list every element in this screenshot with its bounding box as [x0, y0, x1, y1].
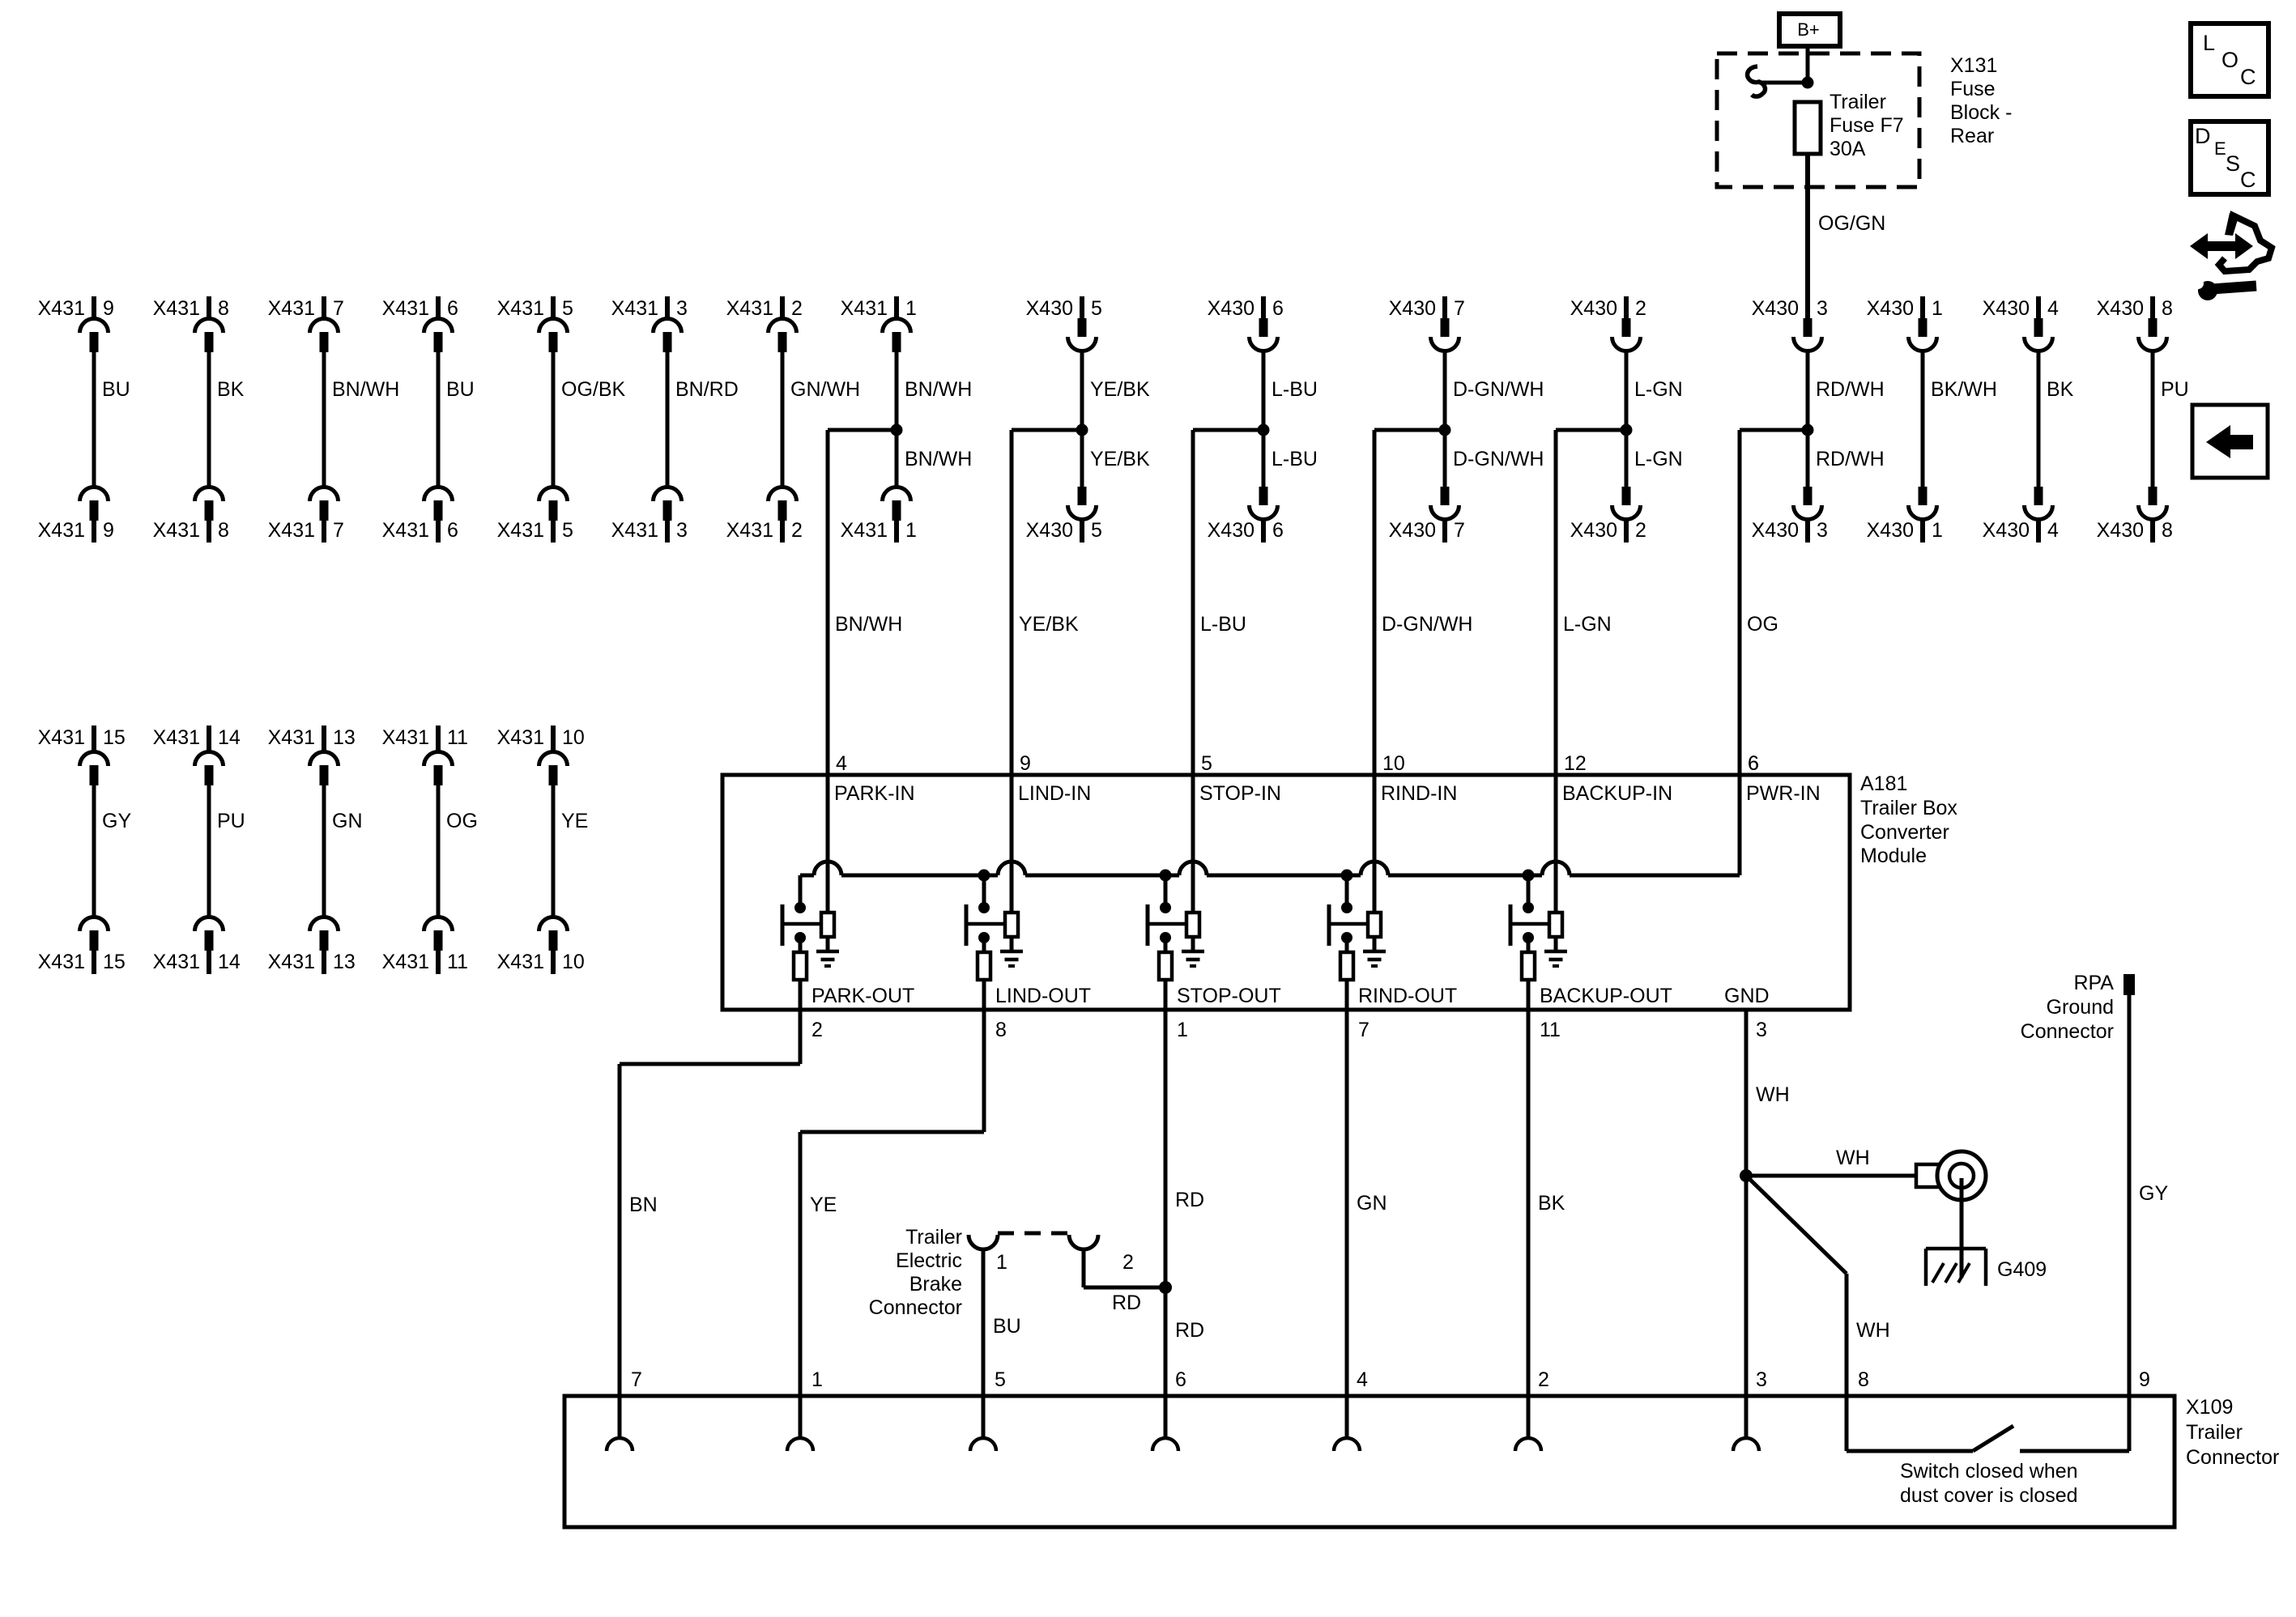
svg-text:GN: GN [1357, 1192, 1387, 1215]
svg-text:10: 10 [1382, 752, 1405, 775]
svg-text:1: 1 [811, 1368, 823, 1391]
svg-text:14: 14 [218, 951, 241, 973]
svg-text:Converter: Converter [1860, 821, 1949, 844]
svg-text:BK: BK [2047, 378, 2074, 401]
svg-text:13: 13 [333, 726, 356, 749]
svg-text:STOP-IN: STOP-IN [1199, 782, 1281, 805]
svg-text:9: 9 [2139, 1368, 2150, 1391]
svg-text:X430: X430 [1867, 297, 1914, 320]
svg-text:X431: X431 [726, 297, 773, 320]
svg-text:X431: X431 [382, 519, 429, 542]
svg-text:RIND-IN: RIND-IN [1381, 782, 1457, 805]
svg-text:X431: X431 [497, 297, 544, 320]
svg-text:6: 6 [1272, 519, 1284, 542]
svg-text:7: 7 [1358, 1019, 1370, 1041]
svg-text:Connector: Connector [2021, 1020, 2114, 1043]
svg-text:LIND-OUT: LIND-OUT [995, 985, 1091, 1007]
svg-text:L-GN: L-GN [1563, 613, 1612, 636]
svg-text:5: 5 [562, 519, 573, 542]
svg-text:X431: X431 [268, 519, 315, 542]
svg-text:RD/WH: RD/WH [1816, 378, 1885, 401]
svg-text:D-GN/WH: D-GN/WH [1453, 448, 1544, 470]
svg-text:1: 1 [905, 297, 917, 320]
svg-text:D-GN/WH: D-GN/WH [1453, 378, 1544, 401]
svg-text:1: 1 [996, 1251, 1007, 1274]
svg-text:Fuse: Fuse [1950, 78, 1996, 100]
svg-text:7: 7 [631, 1368, 642, 1391]
svg-text:7: 7 [333, 519, 344, 542]
svg-text:8: 8 [218, 297, 229, 320]
svg-text:X430: X430 [1389, 297, 1436, 320]
svg-text:X430: X430 [2097, 519, 2144, 542]
svg-text:X430: X430 [1752, 297, 1799, 320]
svg-text:X430: X430 [1867, 519, 1914, 542]
svg-text:X431: X431 [153, 726, 200, 749]
svg-text:Connector: Connector [869, 1296, 962, 1319]
svg-text:8: 8 [1858, 1368, 1869, 1391]
svg-text:7: 7 [1454, 519, 1465, 542]
svg-text:2: 2 [1122, 1251, 1134, 1274]
svg-text:X430: X430 [1389, 519, 1436, 542]
svg-text:4: 4 [836, 752, 847, 775]
svg-text:WH: WH [1836, 1147, 1870, 1169]
svg-text:X431: X431 [153, 951, 200, 973]
svg-text:X131: X131 [1950, 54, 1997, 77]
svg-text:OG/GN: OG/GN [1818, 212, 1885, 235]
svg-text:7: 7 [333, 297, 344, 320]
svg-text:L-BU: L-BU [1272, 378, 1318, 401]
svg-text:L-GN: L-GN [1634, 378, 1683, 401]
svg-text:X430: X430 [1208, 297, 1254, 320]
svg-text:3: 3 [676, 519, 688, 542]
svg-text:WH: WH [1756, 1083, 1790, 1106]
svg-text:6: 6 [447, 297, 458, 320]
svg-text:10: 10 [562, 951, 585, 973]
svg-text:7: 7 [1454, 297, 1465, 320]
svg-text:X431: X431 [268, 297, 315, 320]
svg-text:2: 2 [1635, 297, 1646, 320]
svg-text:X431: X431 [38, 519, 85, 542]
svg-text:X430: X430 [1983, 297, 2030, 320]
svg-text:YE/BK: YE/BK [1090, 448, 1150, 470]
svg-text:PU: PU [217, 810, 245, 832]
svg-text:BN/WH: BN/WH [835, 613, 902, 636]
svg-text:Block -: Block - [1950, 101, 2012, 124]
svg-text:6: 6 [447, 519, 458, 542]
svg-text:PARK-IN: PARK-IN [834, 782, 915, 805]
svg-text:10: 10 [562, 726, 585, 749]
svg-text:G409: G409 [1997, 1258, 2047, 1281]
svg-text:4: 4 [2047, 297, 2059, 320]
svg-text:GY: GY [2139, 1182, 2168, 1205]
svg-text:LIND-IN: LIND-IN [1018, 782, 1091, 805]
svg-text:D-GN/WH: D-GN/WH [1382, 613, 1472, 636]
svg-text:L-BU: L-BU [1200, 613, 1246, 636]
svg-text:2: 2 [1635, 519, 1646, 542]
svg-text:Electric: Electric [896, 1249, 962, 1272]
svg-text:3: 3 [1817, 297, 1828, 320]
svg-text:X430: X430 [1570, 297, 1617, 320]
svg-text:YE/BK: YE/BK [1019, 613, 1079, 636]
svg-text:11: 11 [1540, 1019, 1561, 1041]
svg-text:1: 1 [1932, 519, 1943, 542]
svg-text:15: 15 [103, 951, 126, 973]
svg-text:X431: X431 [841, 519, 888, 542]
svg-text:GN: GN [332, 810, 363, 832]
svg-text:5: 5 [1091, 297, 1102, 320]
svg-text:9: 9 [103, 519, 114, 542]
svg-text:RD: RD [1175, 1189, 1204, 1211]
svg-text:2: 2 [1538, 1368, 1549, 1391]
svg-text:X430: X430 [2097, 297, 2144, 320]
svg-text:RPA: RPA [2073, 972, 2114, 994]
svg-text:X431: X431 [611, 297, 658, 320]
svg-text:BN/WH: BN/WH [905, 448, 972, 470]
svg-text:L-BU: L-BU [1272, 448, 1318, 470]
svg-text:8: 8 [2162, 297, 2173, 320]
svg-text:BK/WH: BK/WH [1931, 378, 1997, 401]
svg-text:RD/WH: RD/WH [1816, 448, 1885, 470]
svg-text:11: 11 [447, 726, 468, 749]
svg-text:Connector: Connector [2186, 1446, 2279, 1469]
svg-text:GN/WH: GN/WH [790, 378, 860, 401]
svg-text:PWR-IN: PWR-IN [1746, 782, 1821, 805]
svg-text:13: 13 [333, 951, 356, 973]
svg-text:14: 14 [218, 726, 241, 749]
svg-text:PU: PU [2161, 378, 2189, 401]
svg-text:2: 2 [791, 519, 803, 542]
svg-text:X430: X430 [1570, 519, 1617, 542]
svg-text:11: 11 [447, 951, 468, 973]
svg-text:X431: X431 [38, 726, 85, 749]
svg-text:RD: RD [1112, 1291, 1141, 1314]
svg-text:YE: YE [810, 1194, 837, 1216]
svg-text:X109: X109 [2186, 1396, 2233, 1419]
svg-text:RIND-OUT: RIND-OUT [1358, 985, 1457, 1007]
svg-text:1: 1 [1932, 297, 1943, 320]
svg-text:B+: B+ [1797, 19, 1820, 40]
svg-text:BK: BK [1538, 1192, 1565, 1215]
svg-text:X431: X431 [382, 951, 429, 973]
svg-text:D: D [2195, 124, 2211, 148]
svg-text:X431: X431 [497, 519, 544, 542]
svg-text:BN/WH: BN/WH [332, 378, 399, 401]
svg-text:X431: X431 [382, 297, 429, 320]
svg-text:O: O [2221, 48, 2238, 72]
svg-text:OG: OG [446, 810, 478, 832]
svg-text:1: 1 [1177, 1019, 1188, 1041]
svg-text:GY: GY [102, 810, 131, 832]
svg-text:12: 12 [1564, 752, 1587, 775]
svg-text:Fuse F7: Fuse F7 [1830, 114, 1904, 137]
svg-text:5: 5 [1091, 519, 1102, 542]
svg-text:X430: X430 [1752, 519, 1799, 542]
svg-text:Brake: Brake [909, 1273, 962, 1296]
svg-text:X430: X430 [1026, 519, 1073, 542]
svg-text:Module: Module [1860, 845, 1927, 867]
svg-text:PARK-OUT: PARK-OUT [811, 985, 914, 1007]
svg-text:3: 3 [1817, 519, 1828, 542]
svg-text:X431: X431 [382, 726, 429, 749]
svg-text:X431: X431 [268, 951, 315, 973]
svg-text:STOP-OUT: STOP-OUT [1177, 985, 1281, 1007]
svg-text:X431: X431 [153, 297, 200, 320]
svg-text:X431: X431 [726, 519, 773, 542]
svg-text:Trailer: Trailer [905, 1226, 962, 1249]
svg-text:9: 9 [103, 297, 114, 320]
svg-text:BU: BU [993, 1315, 1021, 1338]
svg-text:5: 5 [562, 297, 573, 320]
svg-text:2: 2 [791, 297, 803, 320]
svg-text:Trailer Box: Trailer Box [1860, 797, 1957, 819]
svg-text:WH: WH [1856, 1319, 1890, 1342]
svg-text:BN: BN [629, 1194, 658, 1216]
svg-text:2: 2 [811, 1019, 823, 1041]
svg-text:3: 3 [1756, 1019, 1767, 1041]
svg-text:6: 6 [1175, 1368, 1186, 1391]
svg-text:L: L [2203, 31, 2215, 55]
svg-text:3: 3 [676, 297, 688, 320]
svg-text:5: 5 [1201, 752, 1212, 775]
svg-text:8: 8 [2162, 519, 2173, 542]
svg-text:4: 4 [2047, 519, 2059, 542]
svg-text:15: 15 [103, 726, 126, 749]
svg-text:BACKUP-OUT: BACKUP-OUT [1540, 985, 1672, 1007]
svg-text:30A: 30A [1830, 138, 1866, 160]
svg-text:BU: BU [446, 378, 475, 401]
svg-text:X431: X431 [153, 519, 200, 542]
svg-text:dust cover is closed: dust cover is closed [1900, 1484, 2078, 1507]
svg-text:L-GN: L-GN [1634, 448, 1683, 470]
svg-text:YE: YE [561, 810, 588, 832]
svg-text:1: 1 [905, 519, 917, 542]
svg-text:X430: X430 [1026, 297, 1073, 320]
svg-text:6: 6 [1748, 752, 1759, 775]
svg-text:X430: X430 [1983, 519, 2030, 542]
svg-text:Switch closed when: Switch closed when [1900, 1460, 2078, 1483]
svg-text:X431: X431 [497, 726, 544, 749]
svg-text:C: C [2240, 65, 2256, 89]
svg-text:4: 4 [1357, 1368, 1368, 1391]
svg-text:BN/WH: BN/WH [905, 378, 972, 401]
svg-text:X431: X431 [497, 951, 544, 973]
svg-text:E: E [2214, 138, 2226, 159]
svg-text:BN/RD: BN/RD [675, 378, 739, 401]
svg-text:X431: X431 [38, 951, 85, 973]
svg-text:Ground: Ground [2047, 996, 2114, 1019]
svg-text:OG/BK: OG/BK [561, 378, 626, 401]
svg-text:X431: X431 [38, 297, 85, 320]
svg-text:GND: GND [1724, 985, 1770, 1007]
svg-text:Trailer: Trailer [1830, 91, 1886, 113]
svg-text:6: 6 [1272, 297, 1284, 320]
svg-text:X431: X431 [841, 297, 888, 320]
svg-text:8: 8 [995, 1019, 1007, 1041]
svg-text:BU: BU [102, 378, 130, 401]
svg-text:X431: X431 [611, 519, 658, 542]
svg-text:RD: RD [1175, 1319, 1204, 1342]
svg-text:C: C [2240, 168, 2256, 192]
svg-text:OG: OG [1747, 613, 1778, 636]
svg-text:3: 3 [1756, 1368, 1767, 1391]
svg-text:Trailer: Trailer [2186, 1421, 2243, 1444]
svg-text:X431: X431 [268, 726, 315, 749]
svg-text:9: 9 [1020, 752, 1031, 775]
svg-text:5: 5 [995, 1368, 1006, 1391]
svg-text:BACKUP-IN: BACKUP-IN [1562, 782, 1672, 805]
svg-text:YE/BK: YE/BK [1090, 378, 1150, 401]
svg-text:BK: BK [217, 378, 245, 401]
svg-text:8: 8 [218, 519, 229, 542]
svg-text:S: S [2226, 151, 2240, 176]
svg-text:X430: X430 [1208, 519, 1254, 542]
svg-text:A181: A181 [1860, 772, 1907, 795]
svg-text:Rear: Rear [1950, 125, 1994, 147]
